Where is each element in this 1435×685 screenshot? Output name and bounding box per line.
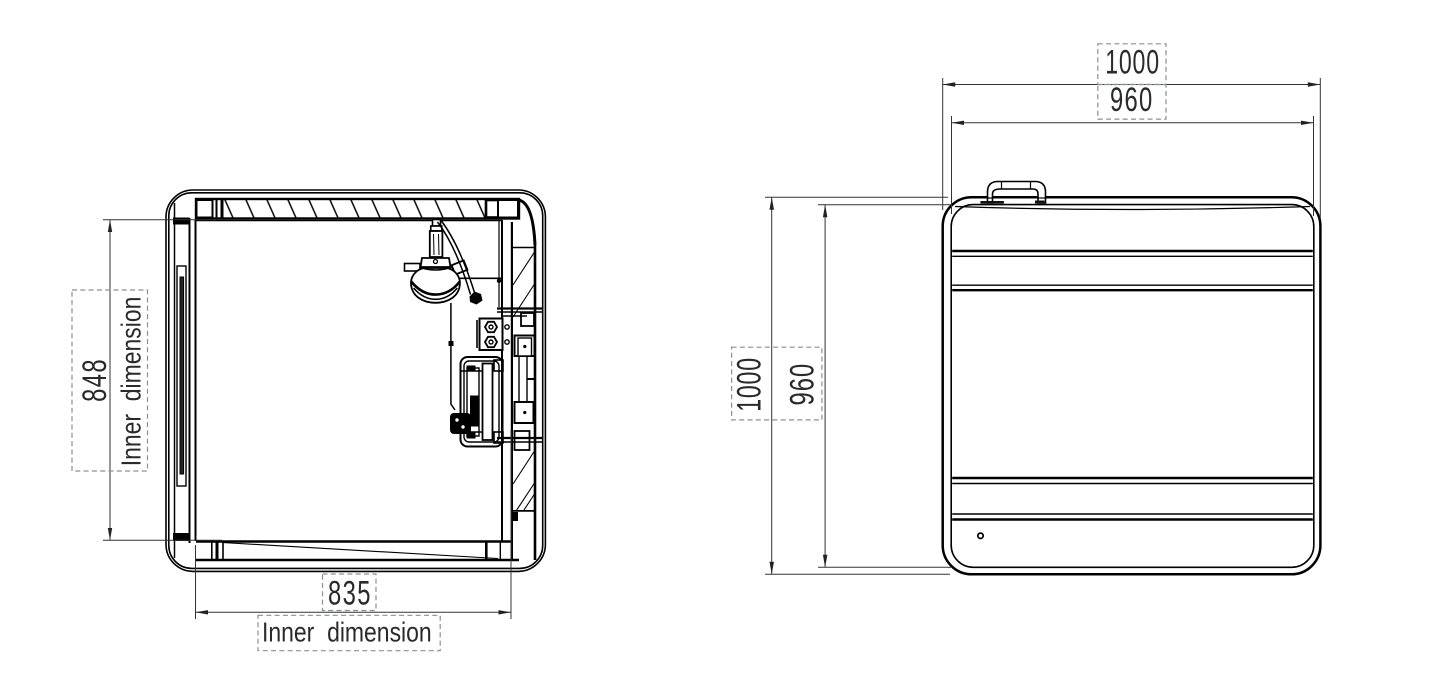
svg-text:Inner dimension: Inner dimension: [116, 297, 147, 467]
svg-text:835: 835: [328, 574, 372, 612]
svg-text:1000: 1000: [731, 357, 768, 412]
svg-text:Inner dimension: Inner dimension: [262, 618, 432, 649]
svg-text:848: 848: [76, 358, 114, 402]
svg-text:960: 960: [783, 363, 821, 406]
svg-text:1000: 1000: [1105, 44, 1160, 81]
svg-text:960: 960: [1110, 81, 1153, 119]
